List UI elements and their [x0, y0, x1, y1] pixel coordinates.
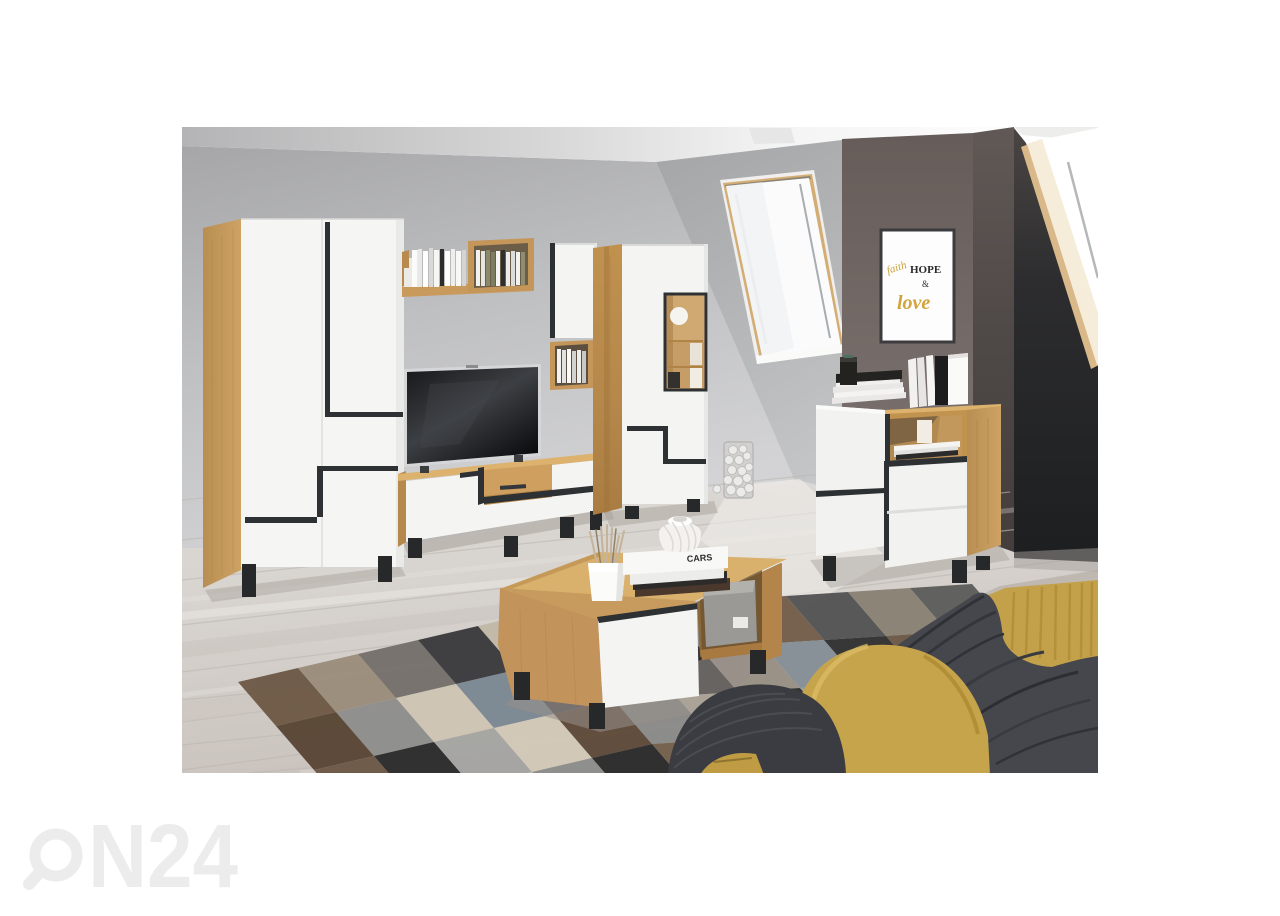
svg-text:love: love — [897, 292, 930, 314]
svg-text:HOPE: HOPE — [910, 264, 941, 276]
svg-text:&: & — [922, 279, 929, 289]
svg-text:CARS: CARS — [686, 552, 712, 564]
svg-text:N24: N24 — [88, 807, 238, 907]
